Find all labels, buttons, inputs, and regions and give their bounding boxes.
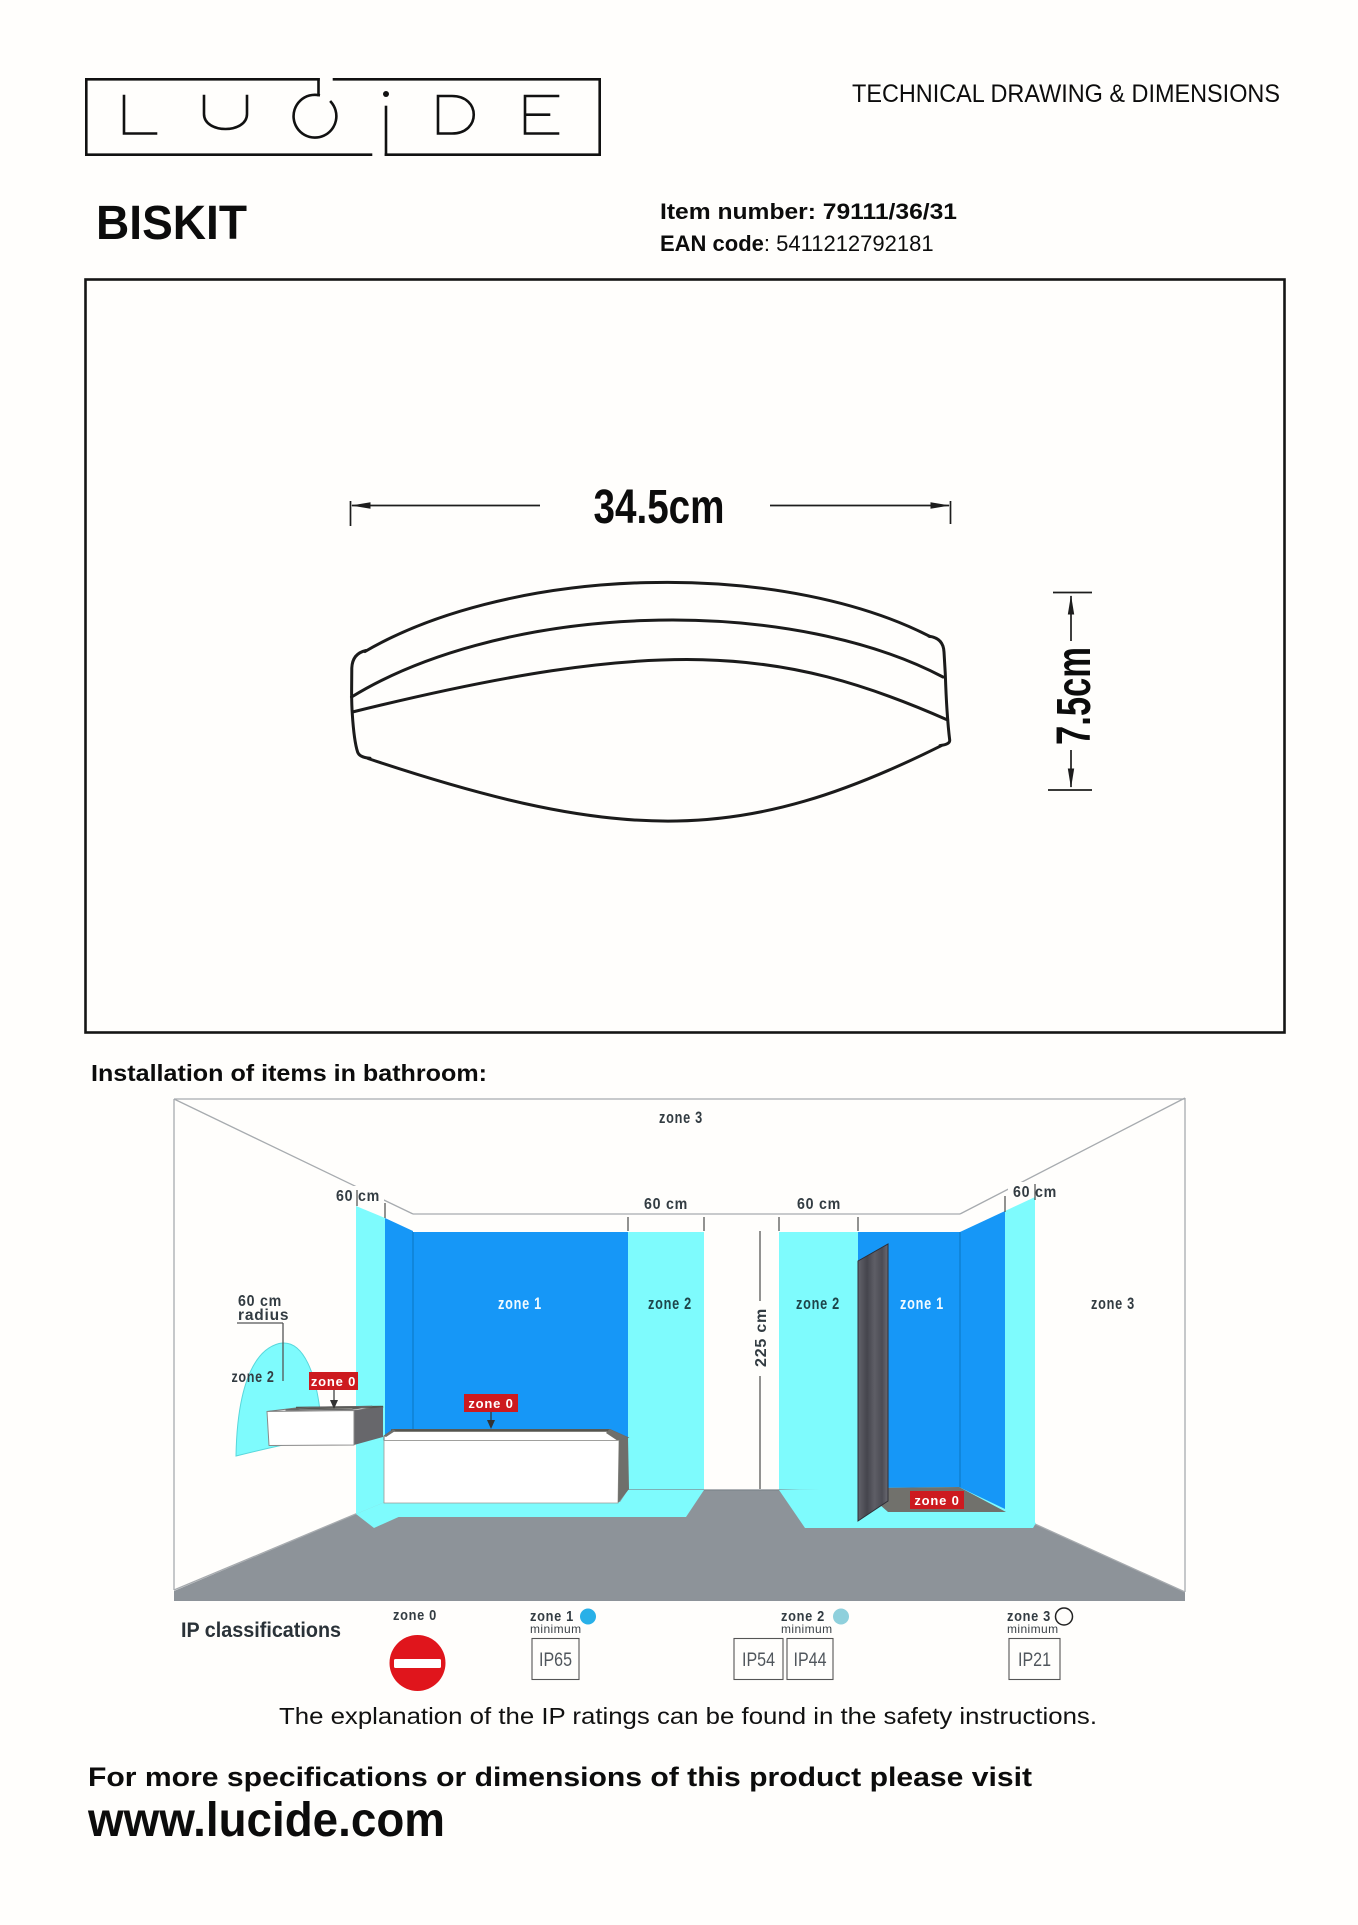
svg-text:zone 2: zone 2 xyxy=(232,1369,275,1386)
svg-text:60 cm: 60 cm xyxy=(644,1196,688,1213)
svg-text:zone 3: zone 3 xyxy=(659,1108,703,1127)
svg-text:60 cm: 60 cm xyxy=(336,1188,380,1205)
svg-text:zone 3: zone 3 xyxy=(1091,1294,1135,1313)
svg-text:60 cm: 60 cm xyxy=(1013,1184,1057,1201)
svg-text:Item number: 79111/36/31: Item number: 79111/36/31 xyxy=(660,199,957,224)
svg-text:For more specifications or dim: For more specifications or dimensions of… xyxy=(88,1762,1032,1792)
svg-text:Installation of items in bathr: Installation of items in bathroom: xyxy=(91,1060,487,1086)
svg-text:EAN code: 5411212792181: EAN code: 5411212792181 xyxy=(660,231,934,256)
svg-text:The explanation of the IP rati: The explanation of the IP ratings can be… xyxy=(279,1703,1097,1729)
svg-text:zone 0: zone 0 xyxy=(311,1374,356,1389)
svg-text:TECHNICAL DRAWING & DIMENSIONS: TECHNICAL DRAWING & DIMENSIONS xyxy=(852,80,1280,108)
svg-text:zone 1: zone 1 xyxy=(900,1294,944,1313)
svg-text:zone 0: zone 0 xyxy=(468,1396,513,1411)
svg-text:60 cm: 60 cm xyxy=(797,1196,841,1213)
svg-text:zone 0: zone 0 xyxy=(914,1493,959,1508)
svg-text:zone 2: zone 2 xyxy=(796,1294,840,1313)
svg-text:minimum: minimum xyxy=(781,1622,832,1636)
svg-text:zone 0: zone 0 xyxy=(393,1607,437,1624)
svg-text:minimum: minimum xyxy=(1007,1622,1058,1636)
svg-text:IP44: IP44 xyxy=(794,1650,827,1671)
svg-text:34.5cm: 34.5cm xyxy=(594,481,725,534)
svg-text:IP classifications: IP classifications xyxy=(181,1619,341,1642)
svg-text:zone 1: zone 1 xyxy=(498,1294,542,1313)
svg-text:BISKIT: BISKIT xyxy=(96,197,247,250)
svg-text:IP21: IP21 xyxy=(1018,1650,1051,1671)
svg-text:IP65: IP65 xyxy=(539,1650,572,1671)
svg-text:zone 2: zone 2 xyxy=(648,1294,692,1313)
svg-text:www.lucide.com: www.lucide.com xyxy=(87,1794,445,1847)
svg-text:IP54: IP54 xyxy=(742,1650,775,1671)
svg-text:7.5cm: 7.5cm xyxy=(1048,647,1101,745)
svg-text:minimum: minimum xyxy=(530,1622,581,1636)
svg-text:225 cm: 225 cm xyxy=(753,1308,770,1367)
svg-text:radius: radius xyxy=(238,1307,289,1324)
